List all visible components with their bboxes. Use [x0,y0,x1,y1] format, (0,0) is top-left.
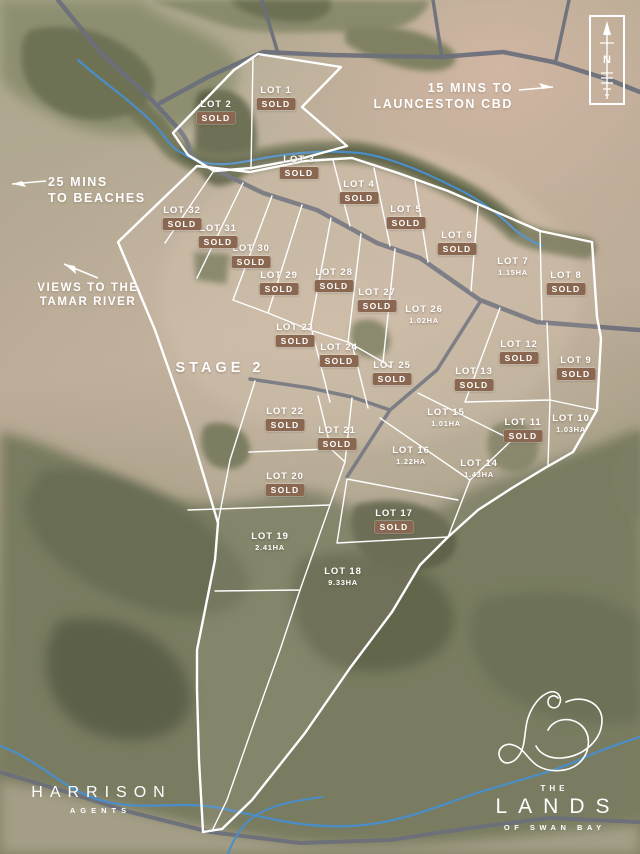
lot-24-marker: LOT 24SOLD [320,342,359,367]
lot-16-label: LOT 16 [392,445,430,456]
annotation-tamar-line1: VIEWS TO THE [24,281,152,295]
lands-logo-prefix: THE [470,784,635,793]
lot-21-sold-badge: SOLD [318,438,357,450]
lot-27-label: LOT 27 [358,287,396,298]
lot-15-marker: LOT 151.01HA [427,407,465,428]
lot-10-marker: LOT 101.03HA [552,413,590,434]
lot-18-area: 9.33HA [328,579,358,587]
lot-4-marker: LOT 4SOLD [340,179,379,204]
lot-8-label: LOT 8 [550,270,581,281]
lot-28-label: LOT 28 [315,267,353,278]
lot-3-label: LOT 3 [283,154,314,165]
lot-24-label: LOT 24 [320,342,358,353]
compass-north-icon: N [586,13,628,107]
lot-19-area: 2.41HA [255,544,285,552]
annotation-cbd-line2: LAUNCESTON CBD [373,97,513,113]
lot-13-label: LOT 13 [455,366,493,377]
lot-15-label: LOT 15 [427,407,465,418]
lot-2-marker: LOT 2SOLD [197,99,236,124]
lot-12-sold-badge: SOLD [500,352,539,364]
annotation-launceston-cbd: 15 MINS TO LAUNCESTON CBD [373,81,513,112]
lot-17-sold-badge: SOLD [375,521,414,533]
lot-30-marker: LOT 30SOLD [232,243,271,268]
lot-31-sold-badge: SOLD [199,236,238,248]
lot-22-label: LOT 22 [266,406,304,417]
lot-8-marker: LOT 8SOLD [547,270,586,295]
lot-13-marker: LOT 13SOLD [455,366,494,391]
lot-25-sold-badge: SOLD [373,373,412,385]
lot-20-marker: LOT 20SOLD [266,471,305,496]
lot-25-label: LOT 25 [373,360,411,371]
lot-9-marker: LOT 9SOLD [557,355,596,380]
compass-letter: N [603,54,611,66]
lot-9-sold-badge: SOLD [557,368,596,380]
lot-13-sold-badge: SOLD [455,379,494,391]
annotation-beaches-line1: 25 MINS [48,175,146,191]
lot-10-area: 1.03HA [556,426,586,434]
harrison-agents-logo: HARRISON AGENTS [10,784,186,815]
annotation-beaches: 25 MINS TO BEACHES [48,175,146,206]
lot-30-sold-badge: SOLD [232,256,271,268]
lot-6-marker: LOT 6SOLD [438,230,477,255]
lot-22-marker: LOT 22SOLD [266,406,305,431]
lot-5-marker: LOT 5SOLD [387,204,426,229]
lot-16-area: 1.22HA [396,458,426,466]
lot-6-label: LOT 6 [441,230,472,241]
annotation-tamar-line2: TAMAR RIVER [24,295,152,309]
arrow-right-icon [517,80,557,96]
lot-26-marker: LOT 261.02HA [405,304,443,325]
lot-7-marker: LOT 71.15HA [497,256,528,277]
lot-31-marker: LOT 31SOLD [199,223,238,248]
lot-11-marker: LOT 11SOLD [504,417,543,442]
lot-23-marker: LOT 23SOLD [276,322,315,347]
lot-2-sold-badge: SOLD [197,112,236,124]
lot-20-sold-badge: SOLD [266,484,305,496]
lot-19-marker: LOT 192.41HA [251,531,289,552]
lot-25-marker: LOT 25SOLD [373,360,412,385]
lot-17-label: LOT 17 [375,508,413,519]
lot-32-sold-badge: SOLD [163,218,202,230]
lot-11-sold-badge: SOLD [504,430,543,442]
lot-5-sold-badge: SOLD [387,217,426,229]
lands-of-swan-bay-logo: THE LANDS OF SWAN BAY [470,690,635,832]
site-map-stage: 15 MINS TO LAUNCESTON CBD 25 MINS TO BEA… [0,0,640,854]
lot-16-marker: LOT 161.22HA [392,445,430,466]
annotation-beaches-line2: TO BEACHES [48,191,146,207]
lot-7-area: 1.15HA [498,269,528,277]
lot-1-sold-badge: SOLD [257,98,296,110]
lot-14-area: 1.43HA [464,471,494,479]
lands-logo-suffix: OF SWAN BAY [470,823,635,832]
lot-2-label: LOT 2 [200,99,231,110]
lot-31-label: LOT 31 [199,223,237,234]
lot-12-label: LOT 12 [500,339,538,350]
arrow-up-left-icon [58,258,102,282]
lot-29-sold-badge: SOLD [260,283,299,295]
lot-26-area: 1.02HA [409,317,439,325]
lot-18-marker: LOT 189.33HA [324,566,362,587]
lot-4-label: LOT 4 [343,179,374,190]
lot-28-sold-badge: SOLD [315,280,354,292]
lot-5-label: LOT 5 [390,204,421,215]
harrison-logo-name: HARRISON [10,784,186,802]
harrison-logo-tagline: AGENTS [10,806,186,815]
lot-27-sold-badge: SOLD [358,300,397,312]
lot-32-label: LOT 32 [163,205,201,216]
lot-4-sold-badge: SOLD [340,192,379,204]
swan-logo-icon [470,690,635,780]
lot-15-area: 1.01HA [431,420,461,428]
lot-18-label: LOT 18 [324,566,362,577]
lot-21-marker: LOT 21SOLD [318,425,357,450]
lot-12-marker: LOT 12SOLD [500,339,539,364]
lot-23-label: LOT 23 [276,322,314,333]
lot-27-marker: LOT 27SOLD [358,287,397,312]
lot-29-label: LOT 29 [260,270,298,281]
annotation-cbd-line1: 15 MINS TO [373,81,513,97]
lot-6-sold-badge: SOLD [438,243,477,255]
lot-3-marker: LOT 3SOLD [280,154,319,179]
lot-20-label: LOT 20 [266,471,304,482]
lot-3-sold-badge: SOLD [280,167,319,179]
lot-1-label: LOT 1 [260,85,291,96]
lot-29-marker: LOT 29SOLD [260,270,299,295]
lot-9-label: LOT 9 [560,355,591,366]
stage-2-label: STAGE 2 [170,360,270,376]
lot-7-label: LOT 7 [497,256,528,267]
lot-14-marker: LOT 141.43HA [460,458,498,479]
lot-28-marker: LOT 28SOLD [315,267,354,292]
lot-1-marker: LOT 1SOLD [257,85,296,110]
lands-logo-name: LANDS [470,795,635,819]
lot-26-label: LOT 26 [405,304,443,315]
lot-24-sold-badge: SOLD [320,355,359,367]
lot-11-label: LOT 11 [504,417,541,428]
lot-8-sold-badge: SOLD [547,283,586,295]
lot-22-sold-badge: SOLD [266,419,305,431]
annotation-tamar-river: VIEWS TO THE TAMAR RIVER [24,281,152,310]
lot-14-label: LOT 14 [460,458,498,469]
lot-21-label: LOT 21 [318,425,356,436]
lot-10-label: LOT 10 [552,413,590,424]
lot-17-marker: LOT 17SOLD [375,508,414,533]
lot-19-label: LOT 19 [251,531,289,542]
lot-30-label: LOT 30 [232,243,270,254]
lot-32-marker: LOT 32SOLD [163,205,202,230]
arrow-left-icon [8,174,48,190]
lot-23-sold-badge: SOLD [276,335,315,347]
